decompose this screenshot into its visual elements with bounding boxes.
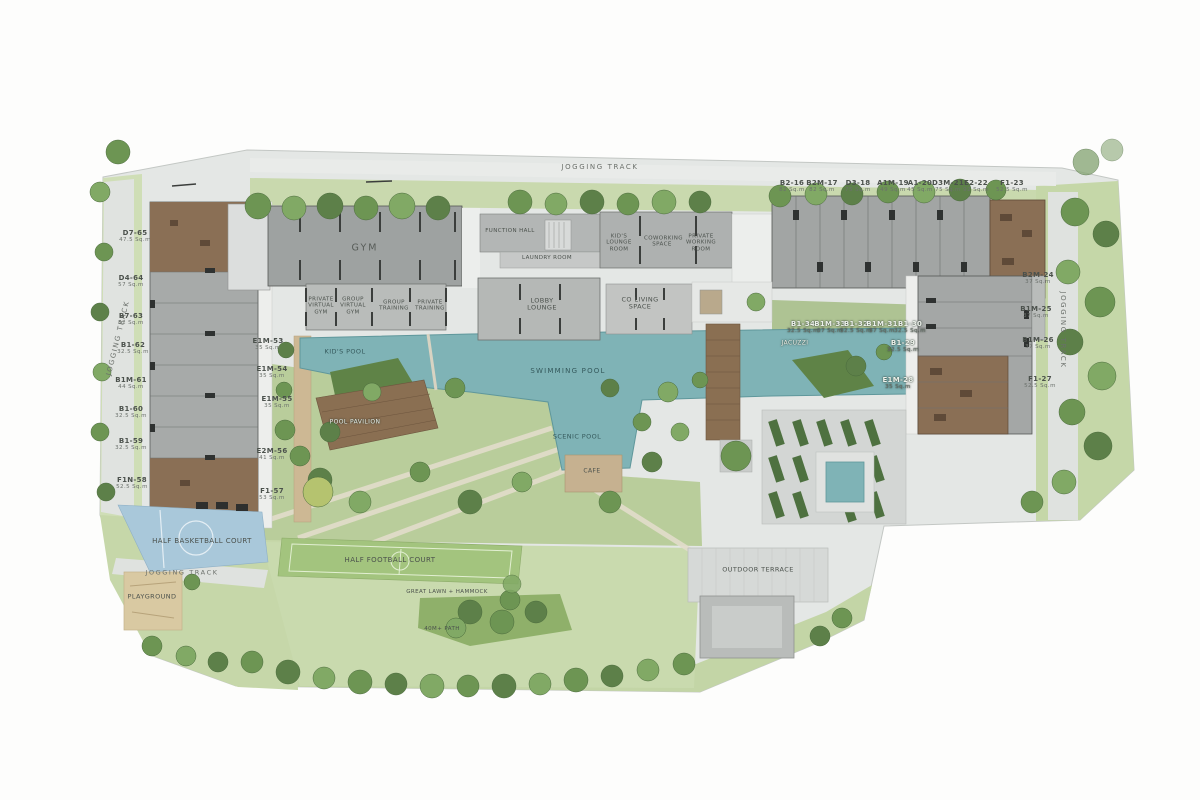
kids-pool-label: KID'S POOL: [325, 348, 366, 355]
unit-label-d7-65: D7-6547.5 Sq.m: [119, 229, 151, 243]
unit-label-f1-23: F1-2352.5 Sq.m: [996, 179, 1028, 193]
group-virtual-gym-label: GROUP VIRTUAL GYM: [339, 297, 367, 316]
outdoor-terrace-label: OUTDOOR TERRACE: [722, 566, 794, 573]
scenic-pool-label: SCENIC POOL: [553, 433, 601, 440]
unit-label-f1-27: F1-2752.5 Sq.m: [1024, 375, 1056, 389]
south-building-roof: [712, 606, 782, 648]
unit-label-b2-16: B2-1682 Sq.m: [779, 179, 805, 193]
unit-label-b2m-24: B2M-2437 Sq.m: [1022, 271, 1054, 285]
unit-label-d3-18: D3-1875 Sq.m: [845, 179, 871, 193]
unit-label-b1m-25: B1M-2537 Sq.m: [1020, 305, 1052, 319]
jacuzzi-label: JACUZZI: [782, 341, 809, 348]
unit-label-b1-60: B1-6032.5 Sq.m: [115, 405, 147, 419]
playground-shape: [124, 572, 182, 630]
unit-label-e2m-56: E2M-5641 Sq.m: [256, 447, 287, 461]
private-working-room-label: PRIVATE WORKING ROOM: [686, 234, 716, 253]
plunge-pool: [826, 462, 864, 502]
unit-label-b1-62: B1-6232.5 Sq.m: [117, 341, 149, 355]
unit-label-d4-64: D4-6457 Sq.m: [118, 274, 144, 288]
unit-label-e1m-28: E1M-2835 Sq.m: [882, 376, 913, 390]
outdoor-terrace-shape: [688, 548, 828, 602]
pool-pavilion-label: POOL PAVILION: [330, 420, 381, 427]
lawn-hammock-label: GREAT LAWN + HAMMOCK: [406, 589, 487, 595]
unit-label-e1m-54: E1M-5435 Sq.m: [256, 365, 287, 379]
unit-label-b1m-26: B1M-2637 Sq.m: [1022, 336, 1054, 350]
kids-lounge-room-label: KID'S LOUNGE ROOM: [605, 234, 633, 253]
private-virtual-gym-label: PRIVATE VIRTUAL GYM: [306, 297, 336, 316]
half-basketball-court-label: HALF BASKETBALL COURT: [152, 537, 252, 545]
playground-label: PLAYGROUND: [128, 593, 177, 600]
unit-label-b2m-17: B2M-1782 Sq.m: [806, 179, 838, 193]
half-football-court-label: HALF FOOTBALL COURT: [345, 556, 436, 564]
unit-label-e2-22: E2-2292 Sq.m: [963, 179, 989, 193]
group-training-label: GROUP TRAINING: [379, 300, 409, 313]
site-plan: JOGGING TRACK JOGGING TRACK JOGGING TRAC…: [0, 0, 1200, 800]
lobby-lounge-label: LOBBY LOUNGE: [524, 298, 560, 313]
unit-label-a1-20: A1-2045 Sq.m: [907, 179, 933, 193]
unit-label-b1-59: B1-5932.5 Sq.m: [115, 437, 147, 451]
right-building: [906, 276, 1045, 434]
site-plan-graphic: [0, 0, 1200, 800]
function-hall-label: FUNCTION HALL: [485, 228, 535, 234]
unit-label-b1-30: B1-3032.5 Sq.m: [894, 320, 926, 334]
unit-label-b1-29: B1-2932.5 Sq.m: [887, 339, 919, 353]
jogging-track-label-bottom: JOGGING TRACK: [145, 569, 218, 576]
unit-label-b1m-31: B1M-3137 Sq.m: [866, 320, 898, 334]
unit-label-f1-57: F1-5753 Sq.m: [259, 487, 285, 501]
unit-label-f1n-58: F1N-5852.5 Sq.m: [116, 476, 148, 490]
pool-bridge: [706, 324, 740, 440]
unit-label-e1m-53: E1M-5335 Sq.m: [252, 337, 283, 351]
cafe-label: CAFE: [583, 469, 600, 476]
path-label: 40M+ PATH: [424, 626, 460, 632]
unit-label-e1m-55: E1M-5535 Sq.m: [261, 395, 292, 409]
coworking-space-label: COWORKING SPACE: [644, 236, 680, 249]
private-training-label: PRIVATE TRAINING: [415, 300, 445, 313]
unit-label-d3m-21: D3M-2175 Sq.m: [932, 179, 964, 193]
gym-label: GYM: [352, 244, 379, 255]
unit-label-b7-63: B7-6352 Sq.m: [118, 312, 144, 326]
jogging-track-label-right: JOGGING TRACK: [1059, 291, 1067, 368]
jogging-track-label-top: JOGGING TRACK: [561, 163, 638, 171]
co-living-space-label: CO LIVING SPACE: [619, 297, 661, 312]
unit-label-a1m-19: A1M-1949 Sq.m: [877, 179, 909, 193]
swimming-pool-label: SWIMMING POOL: [530, 367, 605, 375]
unit-label-b1m-61: B1M-6144 Sq.m: [115, 376, 147, 390]
laundry-room-label: LAUNDRY ROOM: [522, 255, 572, 261]
